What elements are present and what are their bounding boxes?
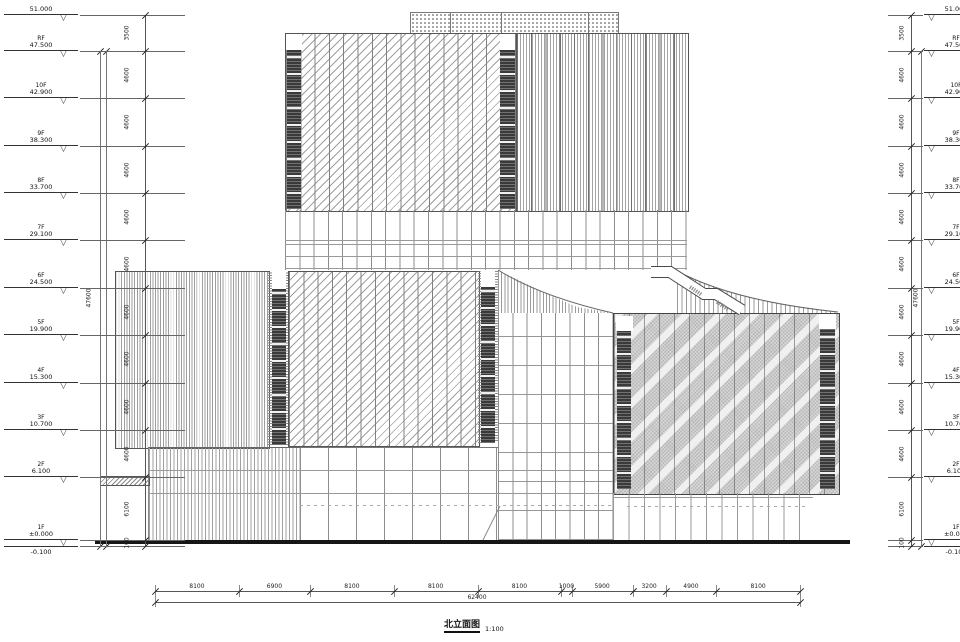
level-value: 33.700 — [4, 184, 78, 191]
floor-height-dim: 100 — [899, 537, 906, 548]
floor-height-dim: 4600 — [899, 304, 906, 319]
floor-height-dim: 4600 — [124, 114, 131, 129]
dim-extension-line — [800, 585, 801, 607]
level-value: 24.500 — [4, 279, 78, 286]
level-marker-icon: ▽ — [60, 97, 67, 106]
level-value: 33.700 — [924, 184, 960, 191]
level-marker-icon: ▽ — [928, 14, 935, 23]
level-value: 29.100 — [924, 231, 960, 238]
overall-height-dim: 47600 — [86, 288, 93, 307]
level-marker-icon: ▽ — [928, 287, 935, 296]
level-value: 29.100 — [4, 231, 78, 238]
floor-height-dim: 4600 — [124, 446, 131, 461]
mid-left-louver-block — [115, 271, 270, 449]
level-marker-icon: ▽ — [928, 334, 935, 343]
level-line — [888, 51, 923, 52]
base-grid-zone-right — [613, 493, 811, 540]
level-value: 19.900 — [924, 326, 960, 333]
base-louver-zone — [148, 447, 301, 541]
corner-notch — [616, 316, 633, 331]
floor-height-dim: 4600 — [124, 256, 131, 271]
level-label: -0.100 — [4, 546, 78, 556]
floor-height-dim: 4600 — [899, 399, 906, 414]
floor-height-dim: 3500 — [899, 25, 906, 40]
level-marker-icon: ▽ — [60, 476, 67, 485]
floor-height-dim: 4600 — [124, 67, 131, 82]
level-value: 42.900 — [924, 89, 960, 96]
level-value: 47.500 — [4, 42, 78, 49]
mid-diagonal-facade-block — [288, 271, 480, 447]
panel-divider — [588, 13, 589, 34]
level-line — [80, 15, 185, 16]
floor-height-dim: 4600 — [899, 256, 906, 271]
floor-height-dim: 4600 — [124, 304, 131, 319]
floor-slab-line — [285, 268, 687, 269]
level-line — [888, 430, 923, 431]
level-marker-icon: ▽ — [928, 97, 935, 106]
louver-strip — [500, 50, 515, 209]
level-line — [80, 240, 185, 241]
sloped-roof-left — [498, 270, 613, 313]
drawing-title: 北立面图 — [444, 617, 480, 633]
level-marker-icon: ▽ — [928, 429, 935, 438]
level-line — [80, 51, 185, 52]
level-line — [888, 546, 923, 547]
panel-divider — [501, 13, 502, 34]
level-value: ±0.000 — [4, 531, 78, 538]
ground-line — [95, 540, 850, 544]
level-line — [888, 98, 923, 99]
level-marker-icon: ▽ — [928, 382, 935, 391]
level-line — [888, 146, 923, 147]
level-line — [80, 288, 185, 289]
level-line — [888, 540, 923, 541]
level-line — [80, 146, 185, 147]
level-value: ±0.000 — [924, 531, 960, 538]
bay-dim: 8100 — [738, 583, 778, 590]
upper-right-facade-block — [516, 33, 689, 212]
level-marker-icon: ▽ — [928, 145, 935, 154]
floor-height-dim: 100 — [124, 537, 131, 548]
dim-extension-line — [911, 15, 912, 547]
corner-notch — [500, 34, 515, 50]
corner-notch — [819, 314, 836, 329]
louver-strip — [287, 50, 301, 209]
level-value: 6.100 — [4, 468, 78, 475]
level-marker-icon: ▽ — [60, 382, 67, 391]
level-marker-icon: ▽ — [60, 14, 67, 23]
level-line — [888, 383, 923, 384]
bottom-overall-dim-line — [155, 602, 800, 603]
level-line — [888, 15, 923, 16]
base-grid-zone — [300, 447, 498, 541]
elevation-sheet: 北立面图 1:100 51.000▽RF47.500▽10F42.900▽9F3… — [0, 0, 960, 642]
level-marker-icon: ▽ — [60, 429, 67, 438]
curtain-wall-band — [285, 210, 687, 270]
floor-height-dim: 4600 — [899, 446, 906, 461]
level-value: 24.500 — [924, 279, 960, 286]
corner-notch — [286, 34, 302, 50]
louver-strip — [820, 329, 835, 489]
floor-height-dim: 4600 — [124, 399, 131, 414]
base-floor-line — [613, 497, 813, 498]
level-marker-icon: ▽ — [60, 287, 67, 296]
bay-dim: 8100 — [332, 583, 372, 590]
floor-slab-line — [285, 256, 687, 257]
louver-strip — [272, 289, 286, 445]
bay-dim: 5900 — [582, 583, 622, 590]
base-dashed-line — [300, 505, 613, 506]
level-value: 15.300 — [4, 374, 78, 381]
bay-dim: 1000 — [546, 583, 586, 590]
floor-height-dim: 6100 — [899, 501, 906, 516]
level-line — [888, 240, 923, 241]
level-value: 38.300 — [4, 137, 78, 144]
level-marker-icon: ▽ — [60, 145, 67, 154]
level-value: 42.900 — [4, 89, 78, 96]
overall-width-dim: 62400 — [457, 594, 497, 601]
louver-strip — [617, 331, 631, 489]
overall-height-dim: 47600 — [913, 288, 920, 307]
bay-dim: 3200 — [629, 583, 669, 590]
level-label: -0.100 — [924, 546, 960, 556]
floor-height-dim: 4600 — [124, 209, 131, 224]
level-marker-icon: ▽ — [928, 476, 935, 485]
gray-feature-block — [613, 313, 840, 495]
floor-height-dim: 4600 — [899, 114, 906, 129]
level-line — [888, 335, 923, 336]
floor-height-dim: 4600 — [899, 162, 906, 177]
floor-height-dim: 4600 — [899, 67, 906, 82]
level-line — [888, 477, 923, 478]
bay-dim: 6900 — [254, 583, 294, 590]
level-line — [80, 193, 185, 194]
level-line — [888, 193, 923, 194]
upper-left-facade-block — [285, 33, 518, 212]
bay-dim: 8100 — [177, 583, 217, 590]
level-line — [80, 383, 185, 384]
level-value: 51.000 — [924, 6, 960, 13]
drawing-scale: 1:100 — [485, 625, 504, 633]
bay-dim: 8100 — [416, 583, 456, 590]
bay-dim: 4900 — [671, 583, 711, 590]
floor-height-dim: 4600 — [124, 162, 131, 177]
level-line — [80, 546, 185, 547]
level-line — [80, 540, 185, 541]
overall-dim-line — [921, 51, 922, 547]
title-block: 北立面图 1:100 — [444, 617, 504, 633]
level-marker-icon: ▽ — [60, 334, 67, 343]
level-value: 15.300 — [924, 374, 960, 381]
floor-height-dim: 3500 — [124, 25, 131, 40]
base-floor-line — [148, 493, 613, 494]
floor-height-dim: 4600 — [124, 351, 131, 366]
floor-slab-line — [285, 240, 687, 241]
panel-divider — [450, 13, 451, 34]
level-marker-icon: ▽ — [928, 50, 935, 59]
roof-equipment-band — [410, 12, 619, 35]
level-line — [80, 98, 185, 99]
level-line — [80, 477, 185, 478]
level-marker-icon: ▽ — [60, 192, 67, 201]
level-value: 6.100 — [924, 468, 960, 475]
floor-height-dim: 4600 — [899, 351, 906, 366]
base-dashed-line — [627, 506, 807, 507]
level-marker-icon: ▽ — [60, 239, 67, 248]
sloped-roof-right — [677, 271, 838, 313]
overall-dim-line — [106, 51, 107, 547]
dim-extension-line — [155, 585, 156, 607]
level-value: 38.300 — [924, 137, 960, 144]
level-marker-icon: ▽ — [928, 192, 935, 201]
level-value: 51.000 — [4, 6, 78, 13]
level-value: 19.900 — [4, 326, 78, 333]
level-line — [80, 335, 185, 336]
level-value: 47.500 — [924, 42, 960, 49]
floor-height-dim: 6100 — [124, 501, 131, 516]
level-value: 10.700 — [924, 421, 960, 428]
floor-height-dim: 4600 — [899, 209, 906, 224]
level-marker-icon: ▽ — [928, 239, 935, 248]
bay-dim: 8100 — [499, 583, 539, 590]
dim-extension-line — [145, 15, 146, 547]
level-line — [80, 430, 185, 431]
base-floor-line — [148, 470, 613, 471]
floor-slab-line — [285, 244, 687, 245]
level-marker-icon: ▽ — [60, 50, 67, 59]
level-value: 10.700 — [4, 421, 78, 428]
louver-strip — [481, 287, 495, 443]
overall-dim-line — [100, 51, 101, 547]
